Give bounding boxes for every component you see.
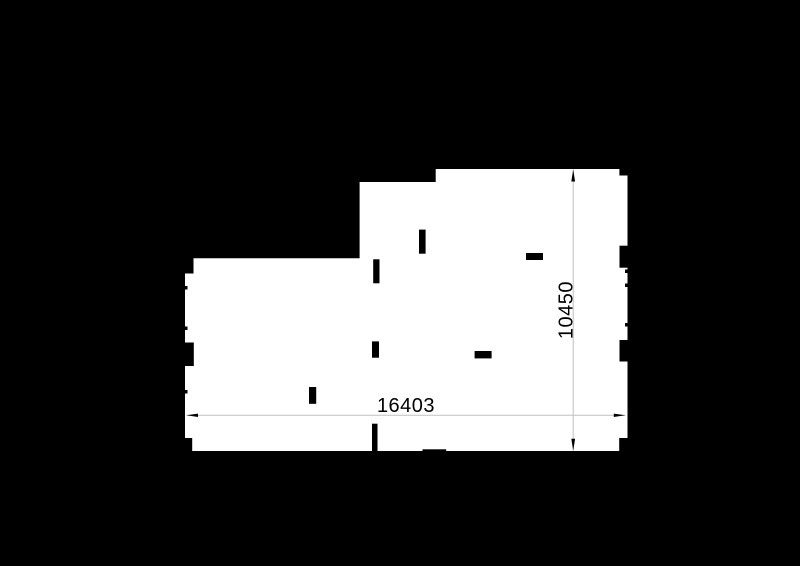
svg-text:10450: 10450 (556, 281, 578, 339)
svg-text:16403: 16403 (377, 395, 435, 417)
